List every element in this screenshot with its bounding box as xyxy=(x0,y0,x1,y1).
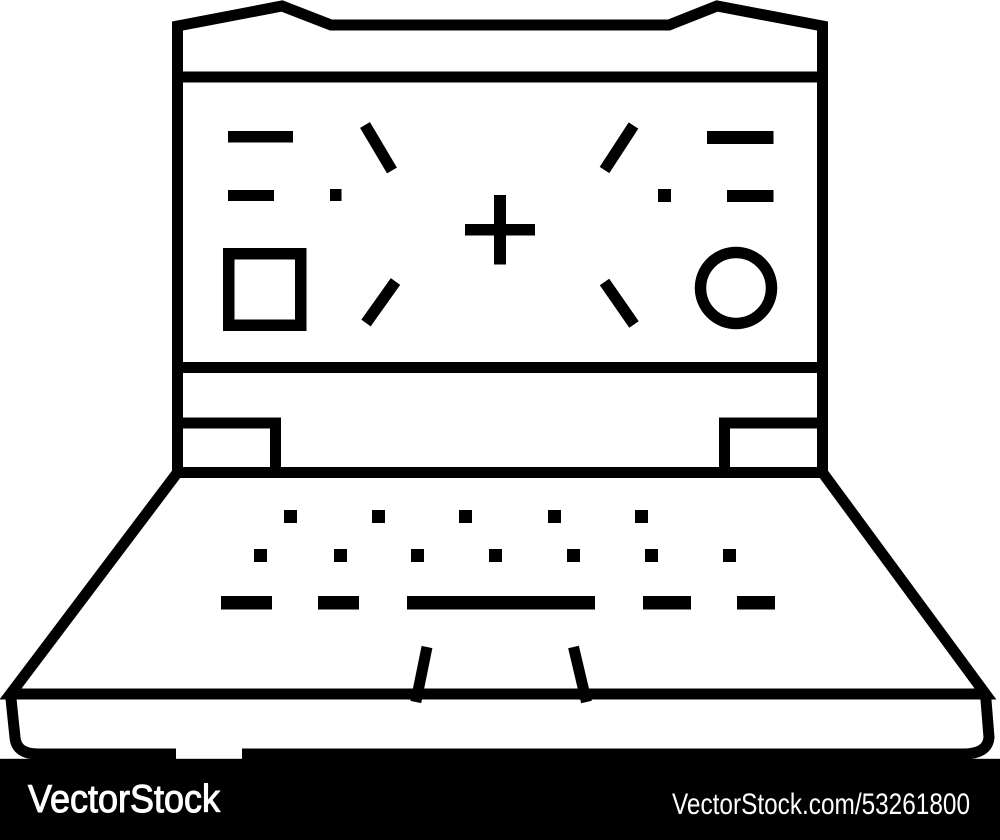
svg-text:VectorStock.com/53261800: VectorStock.com/53261800 xyxy=(672,788,970,821)
svg-text:VectorStock: VectorStock xyxy=(28,778,221,821)
